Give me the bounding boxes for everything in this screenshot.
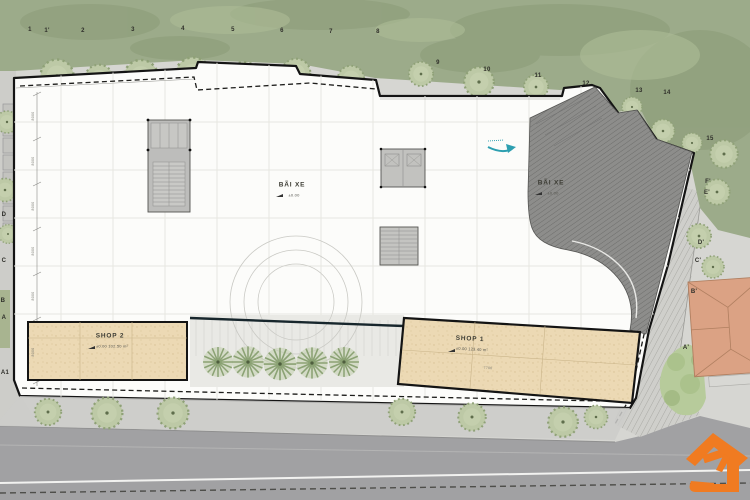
grid-row-label: B' (691, 289, 697, 295)
bay-dimension: 8000 (31, 157, 35, 166)
grid-column-label: 1 (28, 27, 32, 33)
elevation-label: ±0.00 (289, 193, 300, 198)
shop-2-area (28, 322, 187, 380)
elevation-label: ±0.00 (548, 191, 559, 196)
grid-column-label: 5 (231, 27, 235, 33)
grid-column-label: 11 (535, 73, 542, 79)
grid-row-label: D (2, 212, 7, 218)
grid-row-label: B (1, 298, 6, 304)
grid-column-label: 4 (181, 26, 185, 32)
bay-dimension: 8000 (31, 112, 35, 121)
site-plan-drawing (0, 0, 750, 500)
grid-row-label: C' (695, 258, 701, 264)
shop-2-info: ±0.00 102.50 m² (96, 344, 128, 349)
grid-column-label: 7 (329, 29, 333, 35)
neighbor-roof (688, 277, 750, 388)
stair-core-south (380, 227, 418, 265)
grid-row-label: D' (698, 240, 704, 246)
stair-core-west (147, 119, 192, 212)
grid-column-label: 15 (706, 136, 713, 142)
grid-column-label: 9 (436, 60, 440, 66)
grid-column-label: 12 (582, 81, 589, 87)
bay-dimension: 8000 (31, 348, 35, 357)
elevator-core (380, 148, 427, 189)
site-plan-canvas: 1 1' 2 3 4 5 6 7 8 9 10 11 12 13 14 15 D… (0, 0, 750, 500)
grid-column-label: 2 (81, 28, 85, 34)
grid-row-label: F' (705, 179, 711, 185)
grid-column-label: 13 (635, 88, 642, 94)
parking-label-east: BÃI XE (538, 180, 564, 187)
grid-column-label: 14 (663, 90, 670, 96)
grid-column-label: 8 (376, 29, 380, 35)
bay-dimension: 8000 (31, 247, 35, 256)
bay-dimension: 8000 (31, 202, 35, 211)
bay-dimension: 8000 (31, 292, 35, 301)
parking-label-west: BÃI XE (279, 182, 305, 189)
grid-column-label: 3 (131, 27, 135, 33)
grid-column-label: 1' (44, 28, 49, 34)
grid-row-label: E' (704, 190, 710, 196)
grid-column-label: 10 (483, 67, 490, 73)
shop-1-dimension: 7700 (483, 366, 492, 370)
grid-row-label: C (2, 258, 7, 264)
grid-row-label: A' (683, 345, 689, 351)
shop-1-label: SHOP 1 (456, 335, 485, 343)
grid-row-label: A (2, 315, 7, 321)
grid-column-label: 6 (280, 28, 284, 34)
shop-2-label: SHOP 2 (96, 333, 125, 340)
grid-row-label: A1 (1, 370, 9, 376)
